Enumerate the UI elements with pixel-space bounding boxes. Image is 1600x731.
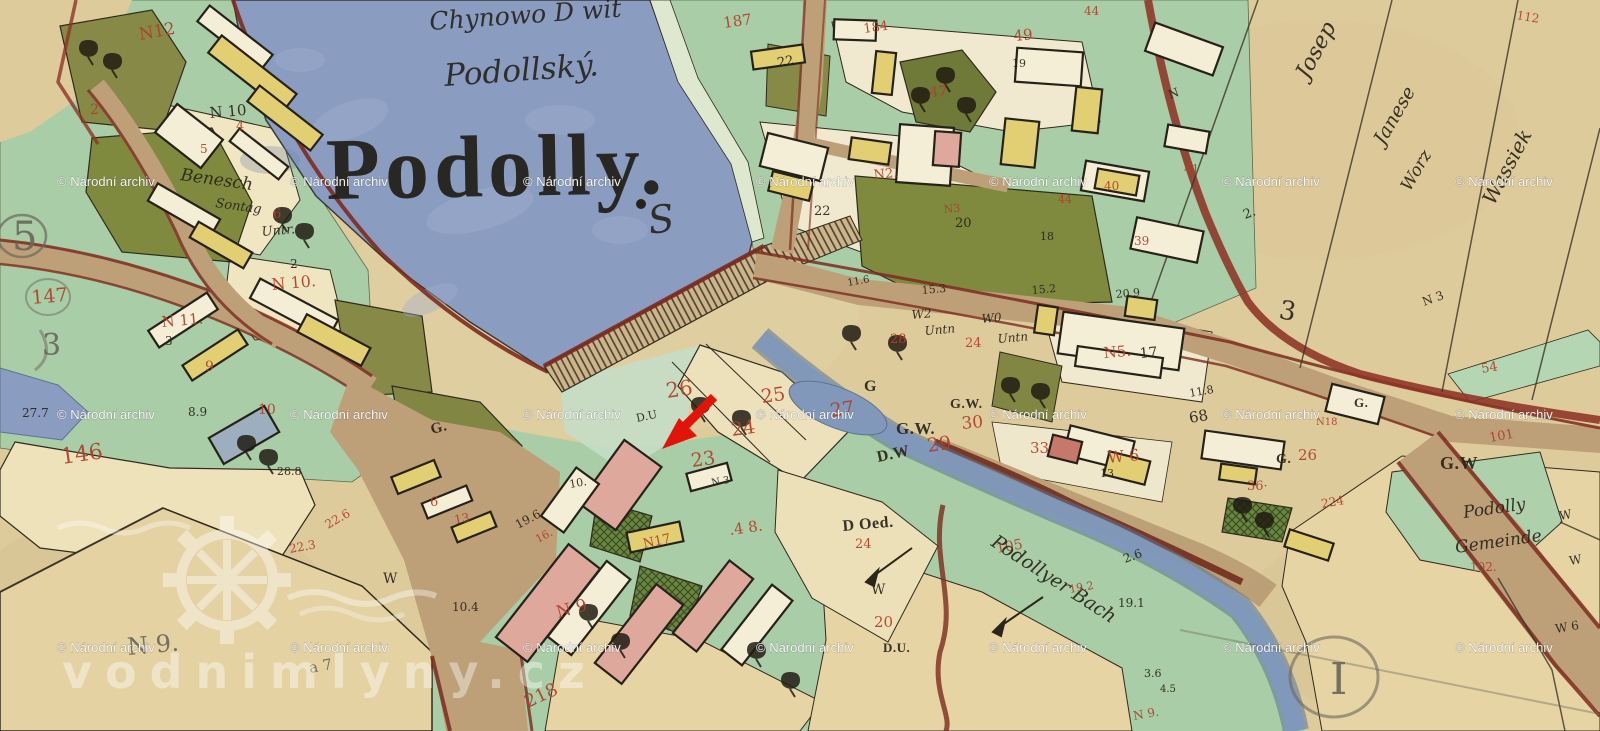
archive-watermark: © Národní archiv bbox=[523, 174, 621, 189]
map-label: 36· bbox=[1247, 479, 1268, 494]
building bbox=[1034, 305, 1058, 336]
map-label: 44 bbox=[1058, 193, 1072, 206]
map-label: G bbox=[864, 378, 877, 395]
map-label: 4.5 bbox=[1160, 684, 1176, 695]
archive-watermark: © Národní archiv bbox=[57, 174, 155, 189]
archive-watermark: © Národní archiv bbox=[1455, 174, 1553, 189]
map-label: N 10. bbox=[271, 271, 317, 294]
archive-watermark: © Národní archiv bbox=[290, 640, 388, 655]
map-label: 47 bbox=[929, 83, 948, 100]
map-label: 6 bbox=[273, 207, 281, 222]
map-label: 22 bbox=[814, 204, 831, 219]
map-label: W 6 bbox=[1107, 445, 1140, 467]
map-label: 30 bbox=[961, 412, 984, 434]
building bbox=[849, 137, 892, 164]
map-label: Untr. bbox=[261, 222, 296, 240]
map-label: N 11. bbox=[161, 309, 204, 331]
building bbox=[1072, 87, 1102, 133]
archive-watermark: © Národní archiv bbox=[1455, 407, 1553, 422]
map-label: 29 bbox=[926, 432, 953, 457]
map-label: 25 bbox=[760, 383, 787, 408]
map-label: W bbox=[871, 582, 886, 598]
map-label: 41 bbox=[1184, 162, 1199, 176]
archive-watermark: © Národní archiv bbox=[57, 640, 155, 655]
map-label: G. bbox=[1354, 395, 1368, 410]
map-viewport: Chynowo D wit Podollský. Podolly. S N122… bbox=[0, 0, 1600, 731]
map-label: 3 bbox=[165, 334, 173, 348]
map-label: 19.1 bbox=[1118, 596, 1145, 610]
map-label: 54 bbox=[1480, 359, 1499, 377]
map-label: 26 bbox=[664, 375, 694, 402]
map-label: D.U. bbox=[883, 640, 910, 655]
map-label: 28.8 bbox=[277, 465, 302, 478]
map-label: Untn bbox=[997, 329, 1029, 346]
map-label: W2 bbox=[911, 306, 932, 322]
map-label: 5 bbox=[200, 142, 208, 156]
map-label: 13 bbox=[1100, 467, 1114, 480]
map-label: 44 bbox=[1084, 4, 1100, 18]
archive-watermark: © Národní archiv bbox=[756, 407, 854, 422]
map-label: 20.9 bbox=[1115, 286, 1141, 301]
map-label: 18 bbox=[1040, 230, 1054, 243]
archive-watermark: © Národní archiv bbox=[989, 174, 1087, 189]
archive-watermark: © Národní archiv bbox=[1222, 407, 1320, 422]
map-label: 40 bbox=[1104, 179, 1119, 193]
archive-watermark: © Národní archiv bbox=[1222, 640, 1320, 655]
map-label: G.W bbox=[1440, 453, 1478, 473]
map-label: W0 bbox=[981, 310, 1002, 326]
archive-watermark: © Národní archiv bbox=[523, 640, 621, 655]
map-label: I bbox=[1330, 654, 1347, 705]
archive-watermark: © Národní archiv bbox=[1222, 174, 1320, 189]
map-label: 5 bbox=[12, 214, 37, 260]
map-label: 15.3 bbox=[921, 282, 947, 297]
building bbox=[1001, 118, 1040, 167]
map-label: 49 bbox=[1013, 25, 1034, 45]
waterwheel-logo-icon bbox=[163, 516, 291, 644]
map-label: 20 bbox=[874, 613, 893, 631]
building bbox=[872, 51, 896, 95]
cadastral-map: Chynowo D wit Podollský. Podolly. S N122… bbox=[0, 0, 1600, 731]
archive-watermark: © Národní archiv bbox=[290, 407, 388, 422]
archive-watermark: © Národní archiv bbox=[523, 407, 621, 422]
building bbox=[933, 131, 961, 167]
map-label: 13 bbox=[453, 511, 470, 527]
archive-watermark: © Národní archiv bbox=[989, 640, 1087, 655]
map-label: 24 bbox=[730, 416, 757, 441]
archive-watermark: © Národní archiv bbox=[57, 407, 155, 422]
map-label: 24 bbox=[965, 336, 982, 351]
map-label: 9 bbox=[205, 359, 214, 375]
map-label: 33 bbox=[1030, 439, 1049, 457]
village-title: Podolly. bbox=[325, 116, 667, 219]
map-label: 22 bbox=[776, 53, 795, 71]
map-label: 3 bbox=[42, 328, 61, 363]
map-label: 2 bbox=[90, 102, 99, 118]
map-label: 19 bbox=[1012, 57, 1026, 70]
map-label: 6 bbox=[430, 495, 438, 510]
map-label: 2 bbox=[290, 257, 298, 271]
map-label: 24 bbox=[855, 537, 872, 552]
map-label: 23 bbox=[690, 447, 717, 472]
map-label: 8.9 bbox=[188, 405, 207, 419]
map-label: W bbox=[383, 571, 398, 587]
map-label: 15.2 bbox=[1031, 282, 1057, 297]
map-label: 26 bbox=[1298, 446, 1317, 464]
map-label: 102. bbox=[1470, 560, 1497, 574]
map-label: Untn bbox=[924, 321, 956, 338]
archive-watermark: © Národní archiv bbox=[989, 407, 1087, 422]
map-label: N5. bbox=[1103, 342, 1132, 362]
archive-watermark: © Národní archiv bbox=[756, 640, 854, 655]
map-label: 10.4 bbox=[452, 600, 479, 614]
archive-watermark: © Národní archiv bbox=[290, 174, 388, 189]
map-label: 3.6 bbox=[1144, 667, 1162, 680]
map-label: 68 bbox=[1188, 406, 1210, 427]
map-label: 20 bbox=[955, 216, 972, 231]
map-label: N2. bbox=[873, 166, 898, 183]
map-label: 39 bbox=[1134, 234, 1149, 248]
map-label: 4 bbox=[236, 119, 244, 134]
map-label: 10 bbox=[258, 402, 276, 418]
map-label: 147 bbox=[31, 284, 69, 309]
map-label: 28 bbox=[890, 332, 907, 347]
map-label: G. bbox=[1276, 452, 1291, 467]
archive-watermark: © Národní archiv bbox=[756, 174, 854, 189]
map-label: G.W. bbox=[950, 397, 983, 412]
map-label: 27.7 bbox=[22, 406, 49, 420]
map-label: N3 bbox=[943, 202, 961, 216]
archive-watermark: © Národní archiv bbox=[1455, 640, 1553, 655]
map-label: 17 bbox=[1139, 344, 1158, 361]
